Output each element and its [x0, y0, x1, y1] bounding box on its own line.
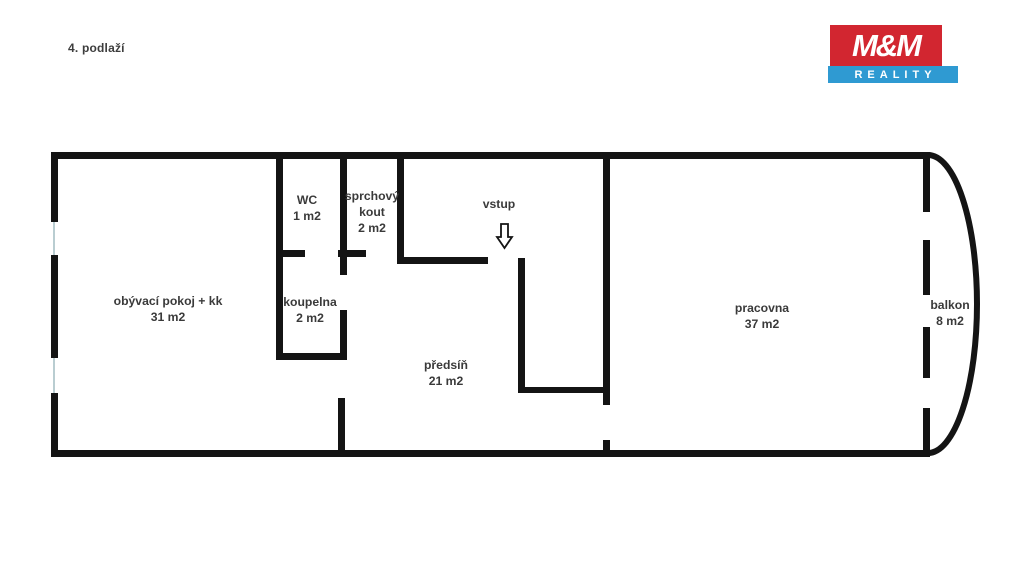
room-label-predsin-line2: 21 m2 — [429, 374, 464, 388]
room-label-sprchovy-kout-line3: 2 m2 — [358, 221, 386, 235]
room-label-predsin: předsíň — [424, 358, 468, 372]
wall-entry-nook-bottom — [518, 387, 610, 393]
wall-hall-study-stub — [603, 440, 610, 457]
wall-outer-left-middle — [51, 255, 58, 358]
wall-wc-bottom-left — [276, 250, 305, 257]
balcony-wall-dash-1 — [923, 152, 930, 212]
wall-living-hall-divider — [338, 398, 345, 457]
room-label-koupelna-line2: 2 m2 — [296, 311, 324, 325]
wall-hall-study-divider — [603, 152, 610, 405]
room-label-wc-line2: 1 m2 — [293, 209, 321, 223]
floor-plan: obývací pokoj + kk31 m2WC1 m2sprchovýkou… — [0, 0, 1024, 576]
room-label-balkon-line2: 8 m2 — [936, 314, 964, 328]
room-label-obyvaci-pokoj-line2: 31 m2 — [151, 310, 186, 324]
room-label-sprchovy-kout-line2: kout — [359, 205, 385, 219]
room-label-balkon: balkon — [930, 298, 969, 312]
wall-outer-bottom — [51, 450, 930, 457]
room-label-koupelna: koupelna — [283, 295, 337, 309]
room-label-obyvaci-pokoj: obývací pokoj + kk — [114, 294, 223, 308]
room-label-pracovna-line2: 37 m2 — [745, 317, 780, 331]
room-label-vstup: vstup — [483, 197, 516, 211]
wall-outer-left-lower — [51, 393, 58, 457]
room-label-pracovna: pracovna — [735, 301, 789, 315]
wall-outer-left-upper — [51, 152, 58, 222]
wall-outer-top — [51, 152, 930, 159]
wall-bath-right — [340, 310, 347, 360]
wall-bath-bottom — [276, 353, 347, 360]
living-window-lower — [53, 358, 55, 393]
wall-shower-hall-divider — [397, 152, 404, 263]
wall-entry-nook-left — [518, 258, 525, 393]
wall-shower-bottom-left — [338, 250, 366, 257]
living-window-upper — [53, 222, 55, 255]
entrance-arrow-icon — [497, 224, 512, 248]
wall-hall-top — [397, 257, 488, 264]
balcony-wall-dash-2 — [923, 240, 930, 295]
balcony-wall-dash-3 — [923, 327, 930, 378]
floorplan-page: 4. podlaží M&M REALITY obývací pokoj + k… — [0, 0, 1024, 576]
room-label-wc: WC — [297, 193, 318, 207]
room-label-sprchovy-kout: sprchový — [345, 189, 399, 203]
balcony-wall-dash-4 — [923, 408, 930, 457]
